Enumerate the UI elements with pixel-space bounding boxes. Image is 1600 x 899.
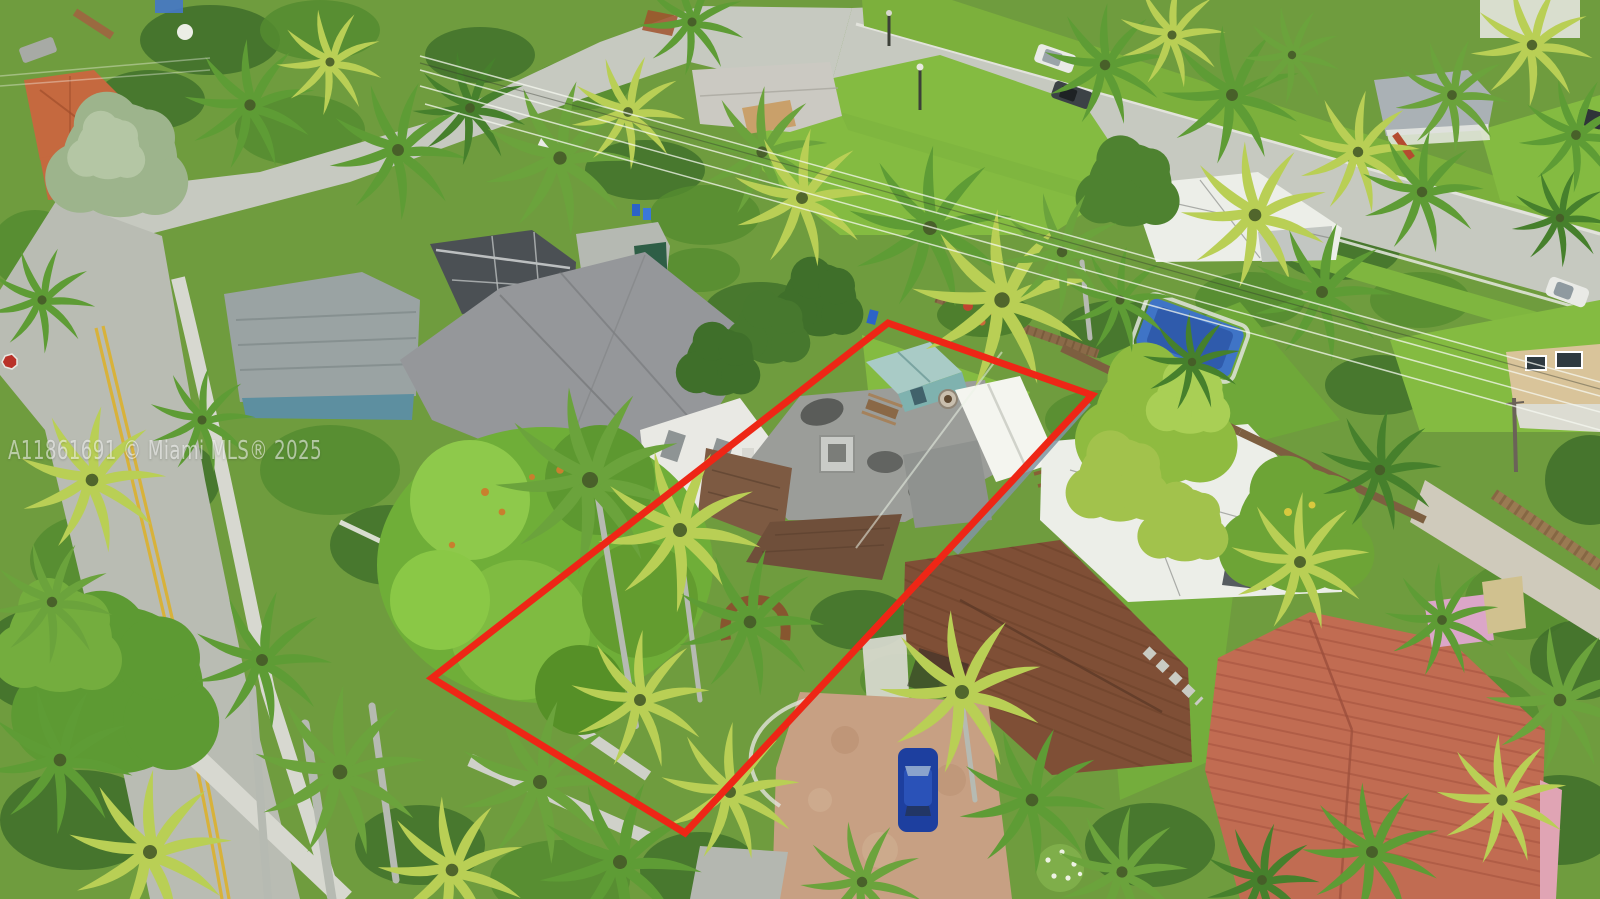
watermark-text: A11861691 © Miami MLS® 2025 xyxy=(8,436,322,466)
trash-bin-blue xyxy=(632,204,640,216)
window xyxy=(1556,352,1582,368)
concrete-pad xyxy=(690,846,788,899)
flower-bush-white xyxy=(1036,844,1084,892)
wall-ac-unit xyxy=(742,448,754,458)
roof-ac-vent xyxy=(828,444,846,462)
roof-stain xyxy=(867,451,903,473)
patio-umbrella xyxy=(177,24,193,40)
aerial-photo: A11861691 © Miami MLS® 2025 xyxy=(0,0,1600,899)
trash-bin-blue xyxy=(643,208,651,220)
stop-sign xyxy=(2,354,17,369)
metal-roof-blue-house xyxy=(224,272,420,420)
pool-top-left xyxy=(155,0,183,13)
tan-shed xyxy=(1482,576,1526,634)
tan-house-right-edge xyxy=(1506,344,1600,432)
blue-car xyxy=(898,748,938,832)
